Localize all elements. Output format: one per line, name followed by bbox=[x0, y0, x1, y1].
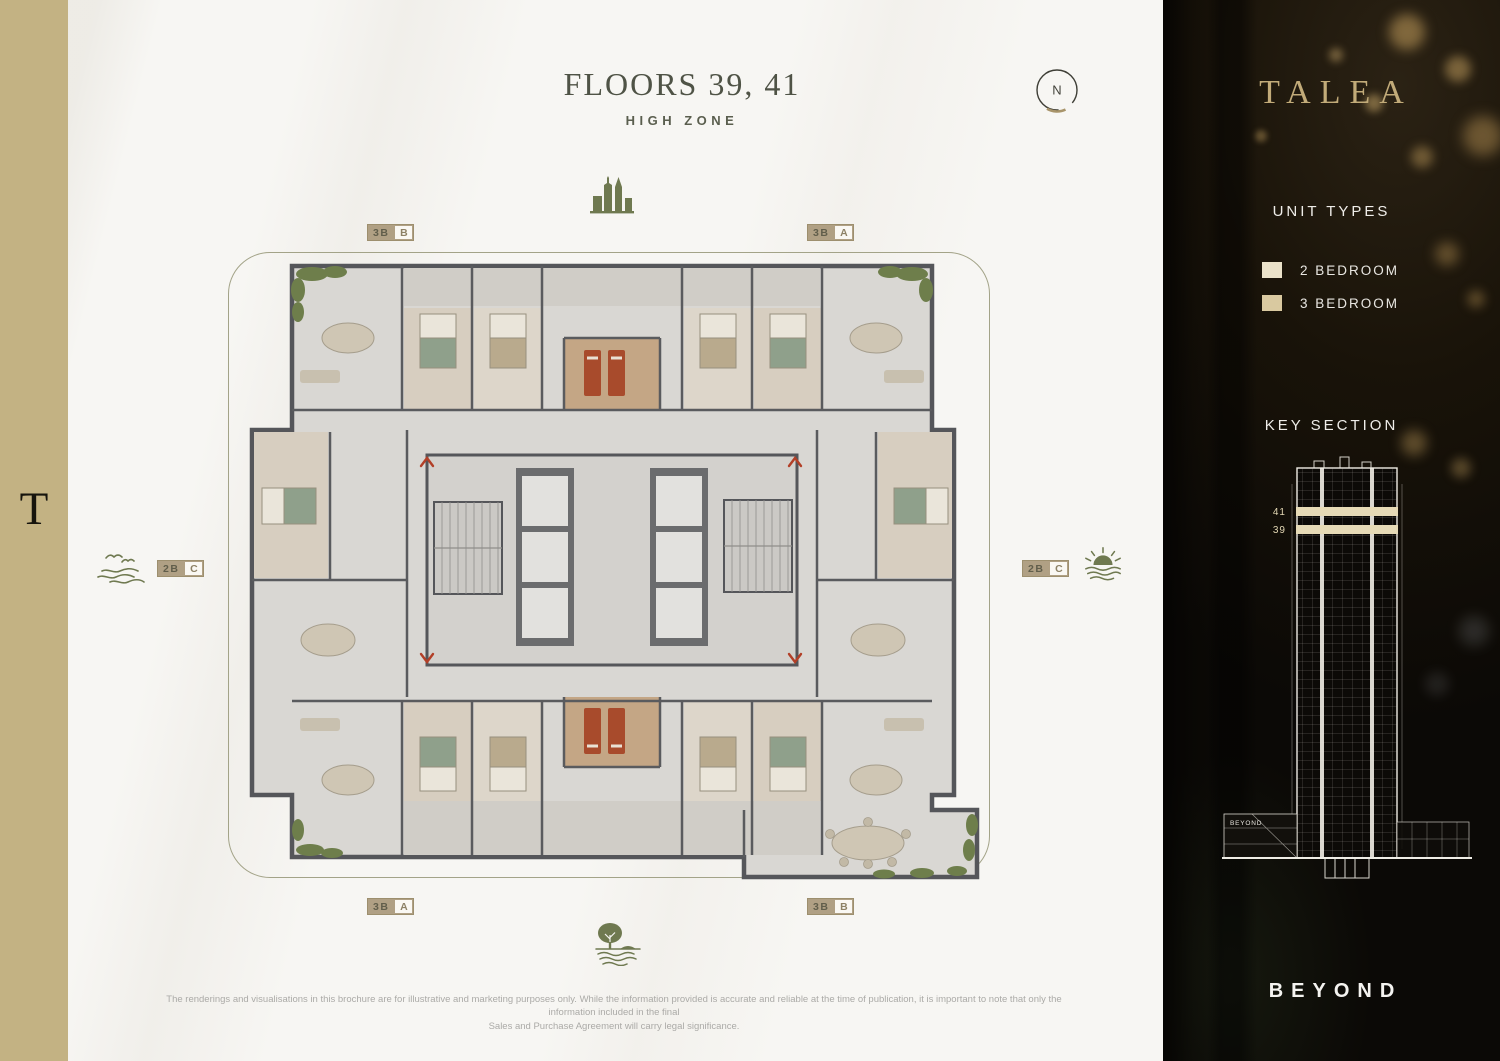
legend-label: 2 BEDROOM bbox=[1300, 263, 1399, 278]
bokeh-dot bbox=[1435, 242, 1459, 266]
floor-label-41: 41 bbox=[1273, 507, 1286, 518]
unit-badge-2b-c-right: 2B C bbox=[1022, 560, 1069, 577]
unit-badge-3b-a-top: 3B A bbox=[807, 224, 854, 241]
swatch-3-bedroom bbox=[1262, 295, 1282, 311]
terrace-top bbox=[564, 338, 660, 410]
sidebar-panel: TALEA UNIT TYPES 2 BEDROOM 3 BEDROOM KEY… bbox=[1163, 0, 1500, 1061]
north-compass-icon: N bbox=[1034, 67, 1080, 113]
svg-text:N: N bbox=[1052, 83, 1061, 98]
badge-letter: B bbox=[835, 900, 852, 913]
bokeh-dot bbox=[1411, 146, 1433, 168]
badge-letter: C bbox=[185, 562, 202, 575]
unit-badge-3b-b-bottom: 3B B bbox=[807, 898, 854, 915]
talea-monogram: T bbox=[0, 486, 68, 533]
unit-types-heading: UNIT TYPES bbox=[1163, 203, 1500, 220]
disclaimer-line-1: The renderings and visualisations in thi… bbox=[158, 993, 1070, 1020]
badge-type: 2B bbox=[158, 561, 184, 576]
badge-type: 3B bbox=[368, 899, 394, 914]
key-section-heading: KEY SECTION bbox=[1163, 417, 1500, 434]
main-sheet: FLOORS 39, 41 HIGH ZONE N bbox=[68, 0, 1163, 1061]
bokeh-dot bbox=[1467, 290, 1485, 308]
bokeh-dot bbox=[1389, 14, 1425, 50]
disclaimer-line-2: Sales and Purchase Agreement will carry … bbox=[158, 1020, 1070, 1033]
bokeh-dot bbox=[1329, 48, 1343, 62]
badge-type: 2B bbox=[1023, 561, 1049, 576]
badge-type: 3B bbox=[808, 899, 834, 914]
beyond-logo: BEYOND bbox=[1163, 980, 1500, 1003]
bokeh-dot bbox=[1463, 116, 1500, 156]
swatch-2-bedroom bbox=[1262, 262, 1282, 278]
unit-types-legend: 2 BEDROOM 3 BEDROOM bbox=[1262, 262, 1399, 328]
bokeh-dot bbox=[1255, 130, 1267, 142]
badge-letter: A bbox=[835, 226, 852, 239]
highlight-floor-39 bbox=[1296, 525, 1398, 534]
page-title: FLOORS 39, 41 bbox=[312, 66, 1052, 103]
floor-label-39: 39 bbox=[1273, 525, 1286, 536]
sunset-sea-icon bbox=[1082, 543, 1124, 585]
legend-label: 3 BEDROOM bbox=[1300, 296, 1399, 311]
terrace-bottom bbox=[564, 697, 660, 767]
brochure-page: T FLOORS 39, 41 HIGH ZONE N bbox=[0, 0, 1500, 1061]
unit-badge-3b-a-bottom: 3B A bbox=[367, 898, 414, 915]
legend-item-3br: 3 BEDROOM bbox=[1262, 295, 1399, 311]
floor-plan bbox=[232, 250, 992, 885]
park-canal-icon bbox=[590, 920, 646, 966]
highlight-floor-41 bbox=[1296, 507, 1398, 516]
disclaimer: The renderings and visualisations in thi… bbox=[158, 993, 1070, 1033]
badge-type: 3B bbox=[368, 225, 394, 240]
badge-letter: C bbox=[1050, 562, 1067, 575]
unit-badge-3b-b-top: 3B B bbox=[367, 224, 414, 241]
badge-type: 3B bbox=[808, 225, 834, 240]
building-elevation: 41 39 BEYOND bbox=[1222, 454, 1472, 886]
seagulls-sea-icon bbox=[96, 547, 146, 585]
badge-letter: B bbox=[395, 226, 412, 239]
page-subtitle: HIGH ZONE bbox=[312, 113, 1052, 128]
talea-logo: TALEA bbox=[1163, 74, 1500, 112]
gold-texture-strip: T bbox=[0, 0, 68, 1061]
legend-item-2br: 2 BEDROOM bbox=[1262, 262, 1399, 278]
city-skyline-icon bbox=[588, 170, 636, 216]
badge-letter: A bbox=[395, 900, 412, 913]
unit-badge-2b-c-left: 2B C bbox=[157, 560, 204, 577]
podium-label: BEYOND bbox=[1230, 820, 1262, 827]
